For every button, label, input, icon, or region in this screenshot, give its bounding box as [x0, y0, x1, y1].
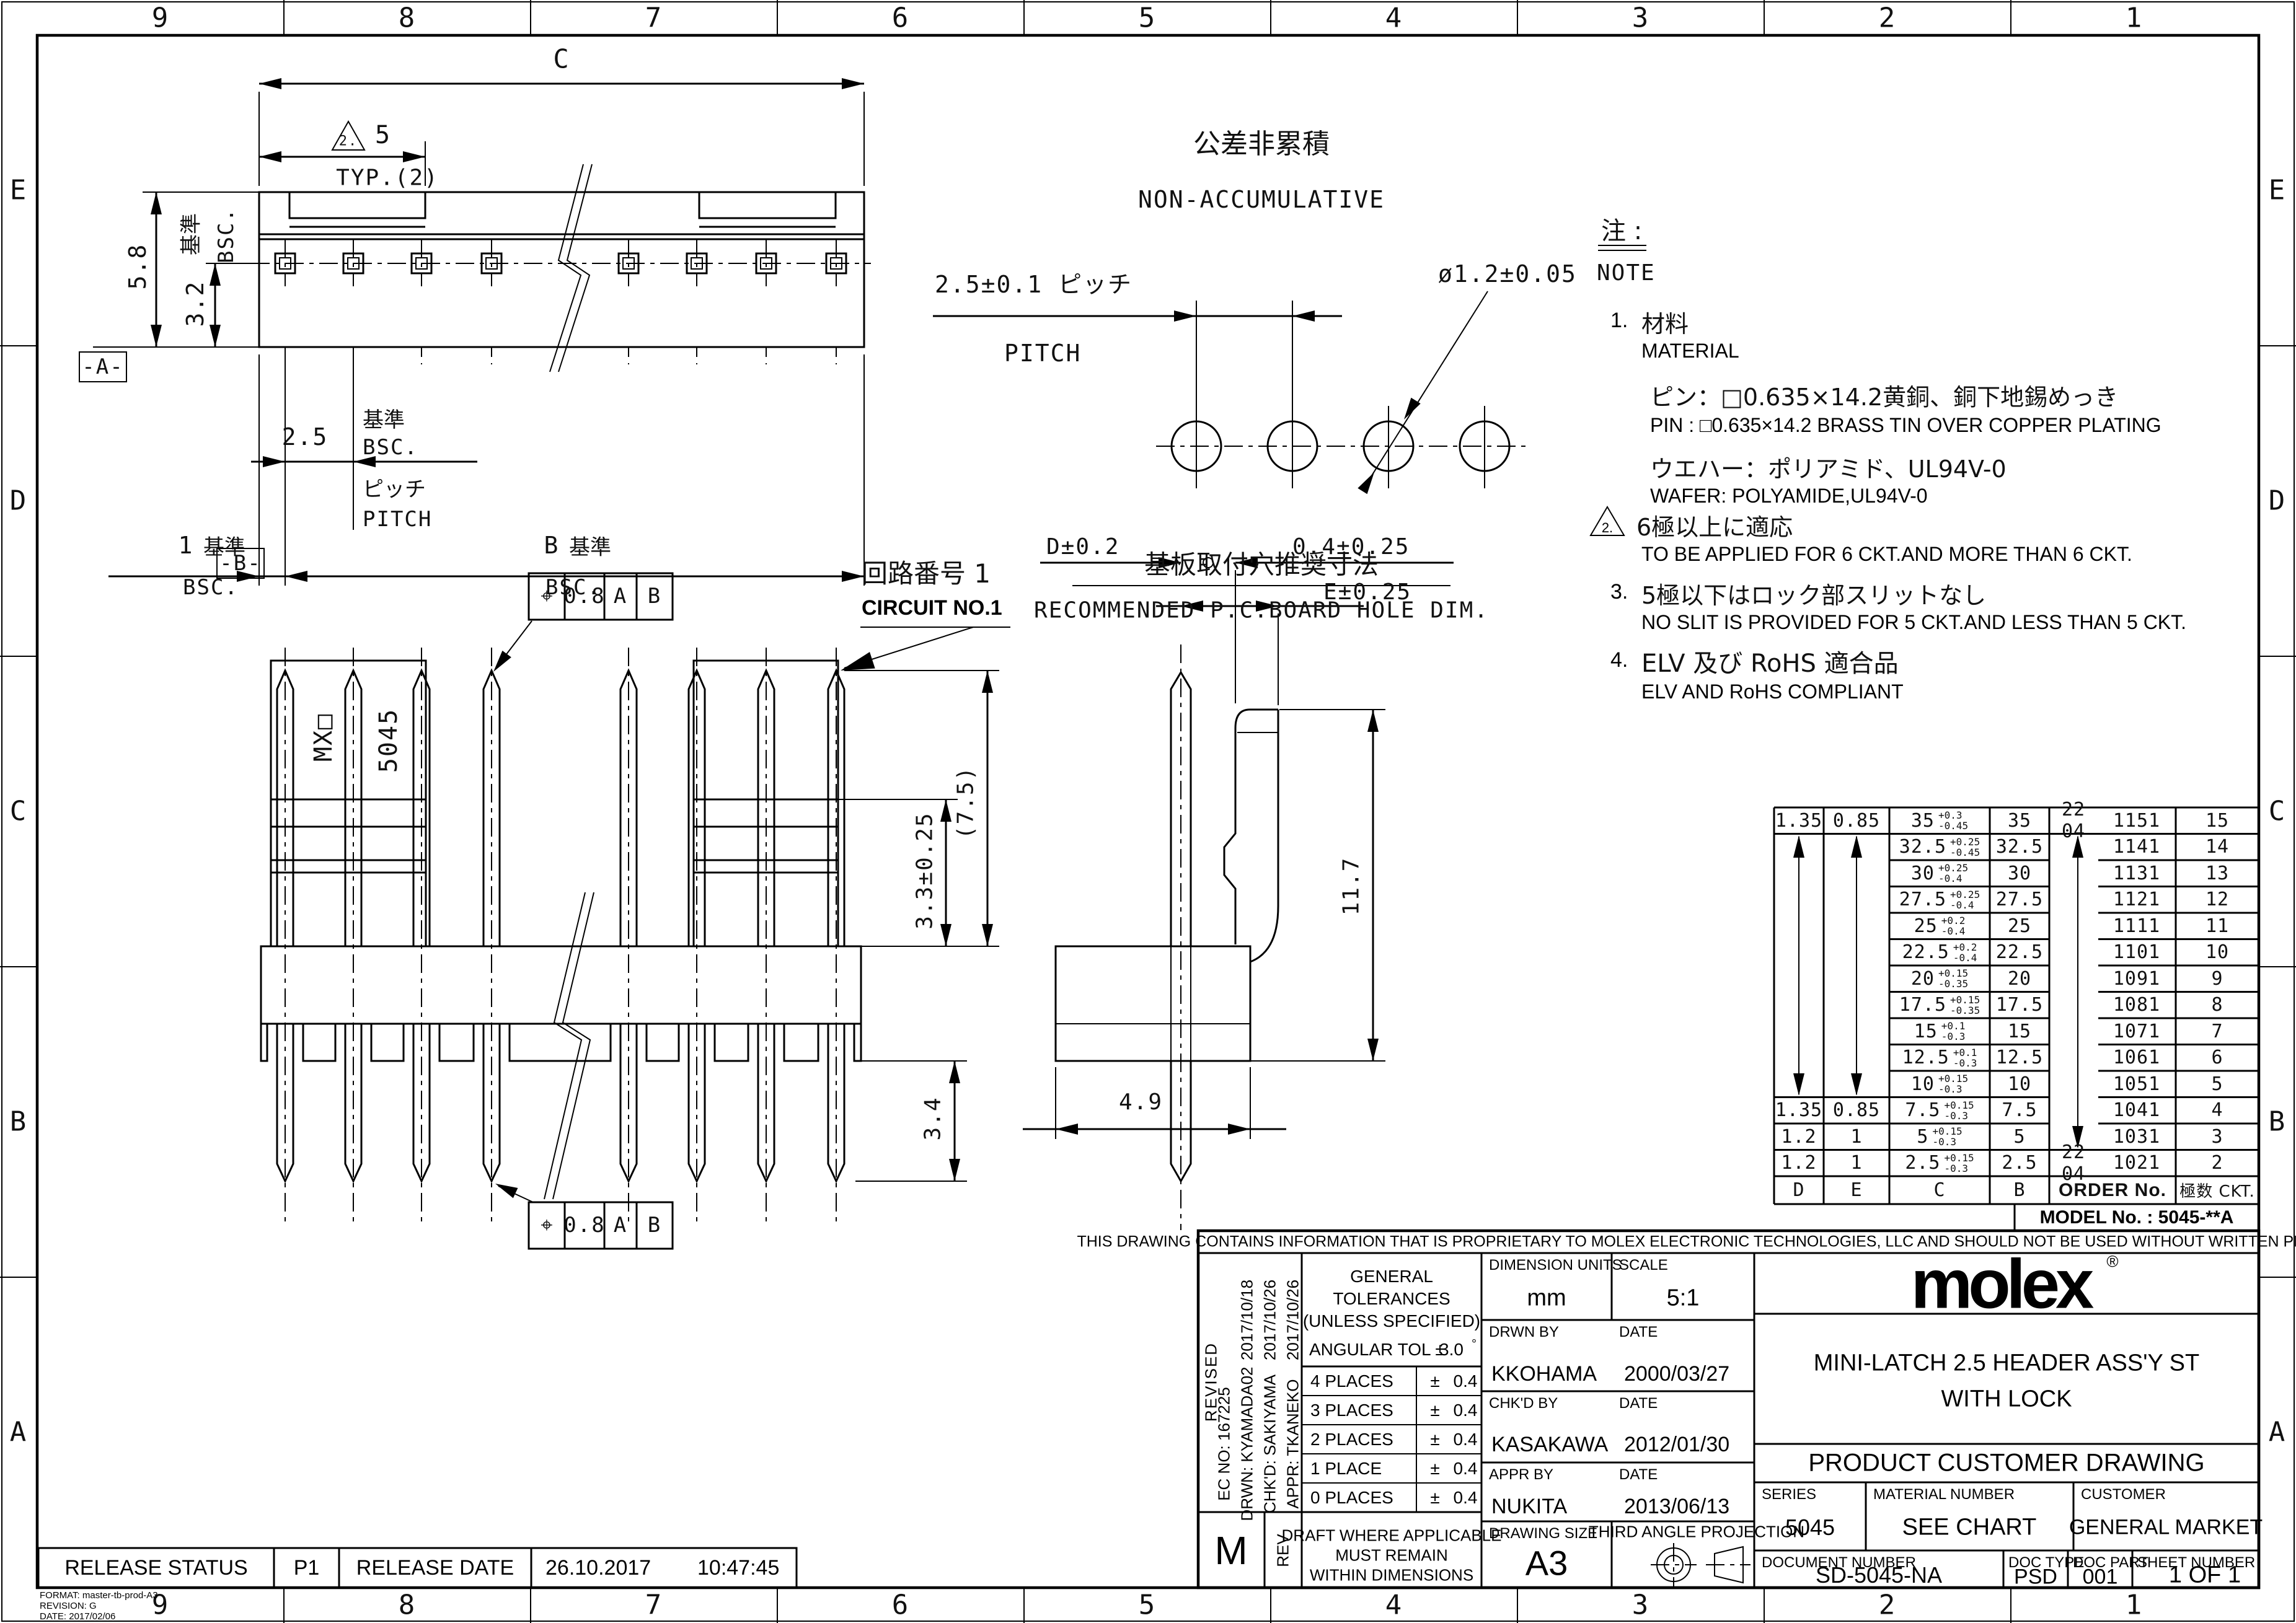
cell-d: 1.2 [1774, 1150, 1824, 1177]
bsc-label: BSC. [183, 575, 239, 600]
note-1a-en: PIN : □0.635×14.2 BRASS TIN OVER COPPER … [1650, 414, 2161, 437]
cell-c-value: 10 [1911, 1073, 1935, 1095]
cell-c-value: 17.5 [1899, 994, 1946, 1016]
docnum-value: SD-5045-NA [1816, 1562, 1942, 1588]
table-row: 30 +0.25 -0.4 30 1131 13 [1774, 860, 2259, 887]
cell-c-tolerance: +0.15 -0.3 [1932, 1126, 1962, 1147]
cell-order: 22 04 1151 [2049, 807, 2176, 834]
material-value: SEE CHART [1902, 1515, 2037, 1541]
doctype-value: PSD [2014, 1565, 2057, 1590]
rev-date: 2017/10/26 [1261, 1280, 1280, 1360]
table-row: 10 +0.15 -0.3 10 1051 5 [1774, 1071, 2259, 1097]
kijun-label: 基準 [363, 403, 405, 433]
tol-minus: -0.4 [1953, 952, 1977, 963]
tol-minus: -0.4 [1941, 926, 1966, 936]
cell-c-value: 15 [1914, 1021, 1938, 1042]
proprietary-note: THIS DRAWING CONTAINS INFORMATION THAT I… [1077, 1233, 2296, 1251]
cell-d [1774, 939, 1824, 966]
cell-e: 1 [1824, 1124, 1889, 1150]
cell-e [1824, 834, 1889, 861]
tolerance-row: 2 PLACES ± 0.4 [1302, 1425, 1481, 1454]
draft-note: MUST REMAIN [1335, 1546, 1448, 1565]
order-table-header: D E C B ORDER No. 極数 CKT. [1774, 1176, 2259, 1204]
cell-e: 0.85 [1824, 1097, 1889, 1124]
tol-title: (UNLESS SPECIFIED) [1303, 1311, 1480, 1331]
tol-plus: +0.25 [1938, 863, 1968, 873]
wall-mx: MX□ [309, 713, 338, 762]
tol-minus: -0.45 [1938, 820, 1968, 831]
cell-c: 35 +0.3 -0.45 [1889, 807, 1990, 834]
header-c: C [1889, 1176, 1990, 1204]
format-line2: REVISION: G [40, 1601, 158, 1611]
chkd-date-value: 2012/01/30 [1624, 1433, 1729, 1457]
rev-triangle-label: 2. [339, 134, 358, 149]
tol-plus: +0.15 [1938, 1073, 1968, 1084]
cell-e [1824, 1018, 1889, 1045]
molex-logo-r: ® [2106, 1252, 2118, 1272]
table-row: 32.5 +0.25 -0.45 32.5 1141 14 [1774, 834, 2259, 861]
dim-units-value: mm [1527, 1285, 1566, 1312]
cell-c-value: 25 [1914, 915, 1938, 937]
cell-order: 1071 [2049, 1018, 2176, 1045]
tol-minus: -0.3 [1938, 1084, 1968, 1094]
tol-pm: ± [1421, 1371, 1449, 1391]
cell-c-value: 7.5 [1905, 1099, 1940, 1121]
customer-label: CUSTOMER [2081, 1486, 2166, 1503]
cell-c: 25 +0.2 -0.4 [1889, 913, 1990, 939]
drwn-date-value: 2000/03/27 [1624, 1362, 1729, 1386]
cell-c-tolerance: +0.15 -0.35 [1938, 968, 1968, 989]
table-row: 1.35 0.85 7.5 +0.15 -0.3 7.5 1041 4 [1774, 1097, 2259, 1124]
cell-c: 22.5 +0.2 -0.4 [1889, 939, 1990, 966]
tol-value: 0.4 [1449, 1459, 1481, 1479]
cell-e: 0.85 [1824, 807, 1889, 834]
cell-c-tolerance: +0.25 -0.45 [1950, 837, 1980, 858]
dim-3-3: 3.3±0.25 [912, 812, 938, 929]
tol-minus: -0.3 [1945, 1111, 1974, 1121]
projection-label: THIRD ANGLE PROJECTION [1589, 1523, 1804, 1542]
cell-d [1774, 1018, 1824, 1045]
order-number: 1081 [2098, 994, 2176, 1016]
tol-places: 0 PLACES [1302, 1488, 1421, 1508]
pitch-jp: ピッチ [363, 472, 426, 503]
date-label: DATE [1619, 1466, 1658, 1484]
cell-ckt: 11 [2176, 913, 2259, 939]
note-header-en: NOTE [1597, 260, 1656, 286]
chkd-sig: CHK'D: SAKIYAMA [1261, 1374, 1280, 1513]
cell-order: 1141 [2049, 834, 2176, 861]
grid-col-label: 7 [645, 1590, 663, 1621]
cell-ckt: 10 [2176, 939, 2259, 966]
tol-minus: -0.3 [1932, 1137, 1962, 1147]
tol-value: 0.4 [1449, 1488, 1481, 1508]
order-number: 1121 [2098, 889, 2176, 910]
header-d: D [1774, 1176, 1824, 1204]
kijun-label: 基準 [569, 530, 611, 561]
note-1-jp: 材料 [1641, 305, 1689, 339]
dim-e: E±0.25 [1323, 579, 1411, 605]
cell-c: 7.5 +0.15 -0.3 [1889, 1097, 1990, 1124]
tol-value: 0.4 [1449, 1371, 1481, 1391]
cell-ckt: 9 [2176, 965, 2259, 992]
order-number: 1101 [2098, 941, 2176, 963]
grid-col-label: 9 [152, 2, 170, 34]
cell-c: 17.5 +0.15 -0.35 [1889, 992, 1990, 1019]
molex-logo: molex [1911, 1244, 2090, 1324]
hole-caption-en: RECOMMENDED P.C.BOARD HOLE DIM. [1034, 598, 1489, 623]
cell-order: 1051 [2049, 1071, 2176, 1097]
tol-places: 3 PLACES [1302, 1401, 1421, 1420]
cell-b: 22.5 [1990, 939, 2049, 966]
rev-letter: M [1214, 1528, 1247, 1573]
cell-b: 7.5 [1990, 1097, 2049, 1124]
order-number: 1091 [2098, 968, 2176, 990]
order-number: 1141 [2098, 836, 2176, 858]
dim-c: C [553, 44, 570, 74]
scale-value: 5:1 [1667, 1285, 1700, 1312]
drwn-by-value: KKOHAMA [1491, 1362, 1597, 1386]
grid-col-label: 6 [892, 2, 910, 34]
cell-e [1824, 1045, 1889, 1071]
cell-c-value: 12.5 [1902, 1047, 1949, 1068]
order-number: 1061 [2098, 1047, 2176, 1068]
note-2-tri: 2. [1602, 520, 1613, 536]
note-1-en: MATERIAL [1641, 340, 1739, 363]
cell-d [1774, 1071, 1824, 1097]
cell-d [1774, 887, 1824, 913]
grid-col-label: 1 [2126, 2, 2144, 34]
tol-plus: +0.2 [1941, 915, 1966, 926]
date-label: DATE [1619, 1324, 1658, 1341]
note-2-en: TO BE APPLIED FOR 6 CKT.AND MORE THAN 6 … [1641, 543, 2132, 566]
dim-0-4: 0.4±0.25 [1292, 534, 1410, 560]
scale-label: SCALE [1619, 1257, 1668, 1274]
date-label: DATE [1619, 1395, 1658, 1412]
cell-c-tolerance: +0.15 -0.3 [1945, 1153, 1974, 1174]
note-2-jp: 6極以上に適応 [1636, 508, 1793, 542]
table-row: 20 +0.15 -0.35 20 1091 9 [1774, 965, 2259, 992]
bsc-label: BSC. [363, 435, 418, 460]
cell-ckt: 2 [2176, 1150, 2259, 1177]
cell-c: 5 +0.15 -0.3 [1889, 1124, 1990, 1150]
cell-ckt: 5 [2176, 1071, 2259, 1097]
cell-ckt: 7 [2176, 1018, 2259, 1045]
cell-d [1774, 965, 1824, 992]
grid-col-label: 4 [1385, 1590, 1403, 1621]
fcf-datum-a: A [614, 1213, 627, 1238]
cell-ckt: 12 [2176, 887, 2259, 913]
drwn-by-label: DRWN BY [1489, 1324, 1559, 1341]
cell-b: 5 [1990, 1124, 2049, 1150]
rev-date: 2017/10/26 [1284, 1280, 1303, 1360]
cell-e [1824, 939, 1889, 966]
table-row: 15 +0.1 -0.3 15 1071 7 [1774, 1018, 2259, 1045]
drawing-sheet: 9 8 7 6 5 4 3 2 1 9 8 7 6 5 4 3 2 1 E D … [0, 0, 2296, 1623]
cell-c: 15 +0.1 -0.3 [1889, 1018, 1990, 1045]
tol-plus: +0.2 [1953, 942, 1977, 952]
fcf-tol: 0.8 [563, 1213, 605, 1238]
dim-7-5: (7.5) [953, 766, 979, 839]
format-line3: DATE: 2017/02/06 [40, 1611, 158, 1622]
cell-c-tolerance: +0.25 -0.4 [1950, 889, 1980, 910]
cell-order: 1101 [2049, 939, 2176, 966]
datum-b: -B- [219, 551, 261, 576]
order-number: 1071 [2098, 1021, 2176, 1042]
circuit-no-jp: 回路番号 1 [862, 553, 991, 591]
cell-c-value: 22.5 [1902, 941, 1949, 963]
order-number: 1021 [2098, 1152, 2176, 1174]
dim-3-2: 3.2 [182, 281, 209, 327]
series-value: 5045 [1785, 1515, 1835, 1541]
cell-b: 17.5 [1990, 992, 2049, 1019]
fcf-datum-b: B [648, 584, 661, 609]
tolerance-row: 1 PLACE ± 0.4 [1302, 1454, 1481, 1483]
customer-value: GENERAL MARKET [2069, 1516, 2263, 1540]
table-row: 12.5 +0.1 -0.3 12.5 1061 6 [1774, 1045, 2259, 1071]
drawing-size-value: A3 [1526, 1543, 1568, 1583]
cell-e: 1 [1824, 1150, 1889, 1177]
tol-plus: +0.15 [1945, 1100, 1974, 1111]
cell-b: 25 [1990, 913, 2049, 939]
cell-b: 2.5 [1990, 1150, 2049, 1177]
chkd-by-value: KASAKAWA [1491, 1433, 1608, 1457]
dim-5-8: 5.8 [124, 244, 151, 290]
cell-c: 27.5 +0.25 -0.4 [1889, 887, 1990, 913]
cell-c-value: 20 [1911, 968, 1935, 990]
cell-d: 1.35 [1774, 1097, 1824, 1124]
cell-c-value: 5 [1917, 1126, 1928, 1148]
chkd-by-label: CHK'D BY [1489, 1395, 1558, 1412]
draft-note: DRAFT WHERE APPLICABLE [1282, 1526, 1502, 1546]
order-number: 1111 [2098, 915, 2176, 937]
cell-c-tolerance: +0.15 -0.35 [1950, 995, 1980, 1016]
release-status-value: P1 [274, 1548, 339, 1588]
hole-dia-dim: ø1.2±0.05 [1438, 260, 1577, 288]
rev-date: 2017/10/18 [1238, 1280, 1257, 1360]
cell-order: 1061 [2049, 1045, 2176, 1071]
tolerance-row: 4 PLACES ± 0.4 [1302, 1366, 1481, 1396]
cell-ckt: 4 [2176, 1097, 2259, 1124]
cell-c: 10 +0.15 -0.3 [1889, 1071, 1990, 1097]
dim-units-label: DIMENSION UNITS [1489, 1257, 1622, 1274]
cell-order: 1041 [2049, 1097, 2176, 1124]
grid-row-label: E [2269, 175, 2287, 206]
grid-col-label: 2 [1879, 2, 1897, 34]
side-view-linework [1023, 557, 1454, 1230]
header-e: E [1824, 1176, 1889, 1204]
dim-typ2: TYP.(2) [336, 165, 439, 191]
header-b: B [1990, 1176, 2049, 1204]
cell-ckt: 14 [2176, 834, 2259, 861]
position-symbol-icon: ⌖ [541, 584, 552, 609]
tol-minus: -0.4 [1950, 900, 1980, 910]
tol-plus: +0.3 [1938, 810, 1968, 820]
fcf-datum-b: B [648, 1213, 661, 1238]
table-row: 22.5 +0.2 -0.4 22.5 1101 10 [1774, 939, 2259, 966]
cell-c-tolerance: +0.3 -0.45 [1938, 810, 1968, 831]
grid-col-label: 3 [1632, 2, 1650, 34]
cell-ckt: 3 [2176, 1124, 2259, 1150]
cell-d [1774, 834, 1824, 861]
drwn-sig: DRWN: KYAMADA02 [1238, 1367, 1257, 1521]
hole-title-jp: 公差非累積 [1193, 121, 1330, 161]
tol-value: 0.4 [1449, 1430, 1481, 1449]
tol-minus: -0.3 [1945, 1163, 1974, 1174]
angular-tol-label: ANGULAR TOL ± [1309, 1340, 1445, 1360]
cell-e [1824, 913, 1889, 939]
tol-minus: -0.45 [1950, 847, 1980, 858]
order-table: 1.35 0.85 35 +0.3 -0.45 35 22 04 1151 15… [1774, 807, 2259, 1176]
angular-tol-value: 3.0 [1439, 1340, 1464, 1360]
table-row: 1.35 0.85 35 +0.3 -0.45 35 22 04 1151 15 [1774, 807, 2259, 834]
cell-c-value: 27.5 [1899, 889, 1946, 910]
grid-col-label: 6 [892, 1590, 910, 1621]
cell-e [1824, 1071, 1889, 1097]
release-date-value: 26.10.2017 [545, 1548, 651, 1588]
grid-row-label: B [10, 1106, 28, 1138]
cell-ckt: 13 [2176, 860, 2259, 887]
drawing-title-line2: WITH LOCK [1941, 1386, 2072, 1413]
ec-no: EC NO: 167225 [1215, 1387, 1234, 1501]
cell-e [1824, 992, 1889, 1019]
angular-tol-deg: ° [1472, 1337, 1477, 1352]
dim-11-7: 11.7 [1339, 857, 1364, 916]
hole-title-en: NON-ACCUMULATIVE [1138, 186, 1385, 213]
draft-note: WITHIN DIMENSIONS [1310, 1566, 1473, 1585]
wall-series: 5045 [374, 708, 403, 773]
cell-order: 1081 [2049, 992, 2176, 1019]
tol-title: GENERAL [1350, 1267, 1433, 1287]
cell-d [1774, 1045, 1824, 1071]
grid-col-label: 8 [399, 1590, 417, 1621]
grid-col-label: 3 [1632, 1590, 1650, 1621]
cell-b: 12.5 [1990, 1045, 2049, 1071]
cell-c-value: 30 [1911, 863, 1935, 884]
appr-by-value: NUKITA [1491, 1495, 1567, 1519]
cell-b: 30 [1990, 860, 2049, 887]
order-number: 1151 [2098, 810, 2176, 832]
note-1b-en: WAFER: POLYAMIDE,UL94V-0 [1650, 485, 1928, 508]
grid-row-label: C [10, 796, 28, 827]
order-number: 1031 [2098, 1126, 2176, 1148]
cell-c-value: 35 [1911, 810, 1935, 832]
format-note: FORMAT: master-tb-prod-A3 REVISION: G DA… [40, 1590, 158, 1622]
grid-row-label: E [10, 175, 28, 206]
third-angle-projection-icon [1651, 1543, 1751, 1586]
tol-plus: +0.15 [1938, 968, 1968, 979]
note-1a-jp: ピン：□0.635×14.2黄銅、銅下地錫めっき [1650, 378, 2118, 412]
cell-c-tolerance: +0.1 -0.3 [1941, 1021, 1966, 1042]
drawing-size-label: DRAWING SIZE [1489, 1525, 1597, 1542]
order-number: 1041 [2098, 1099, 2176, 1121]
tol-pm: ± [1421, 1488, 1449, 1508]
cell-order: 1111 [2049, 913, 2176, 939]
table-row: 17.5 +0.15 -0.35 17.5 1081 8 [1774, 992, 2259, 1019]
pitch-en: PITCH [363, 507, 432, 532]
dim-1: 1 [179, 532, 194, 559]
cell-ckt: 8 [2176, 992, 2259, 1019]
tol-title: TOLERANCES [1333, 1289, 1450, 1309]
doc-title: PRODUCT CUSTOMER DRAWING [1808, 1449, 2204, 1477]
cell-c-tolerance: +0.1 -0.3 [1953, 1047, 1977, 1068]
dim-b: B [544, 532, 560, 559]
grid-col-label: 1 [2126, 1590, 2144, 1621]
material-label: MATERIAL NUMBER [1873, 1486, 2015, 1503]
cell-c-value: 2.5 [1905, 1152, 1940, 1174]
fcf-tol: 0.8 [563, 584, 605, 609]
cell-c-tolerance: +0.25 -0.4 [1938, 863, 1968, 884]
grid-col-label: 4 [1385, 2, 1403, 34]
top-view-linework [79, 78, 871, 586]
appr-sig: APPR: TKANEKO [1284, 1379, 1303, 1508]
tol-value: 0.4 [1449, 1401, 1481, 1420]
circuit-no-en: CIRCUIT NO.1 [862, 596, 1002, 620]
bsc-label: BSC. [214, 208, 239, 263]
dim-4-9: 4.9 [1119, 1089, 1163, 1115]
cell-c: 20 +0.15 -0.35 [1889, 965, 1990, 992]
grid-row-label: A [10, 1417, 28, 1448]
order-number: 1051 [2098, 1073, 2176, 1095]
note-3-num: 3. [1610, 580, 1628, 604]
drawing-title-line1: MINI-LATCH 2.5 HEADER ASS'Y ST [1814, 1350, 2199, 1377]
dim-5: 5 [375, 121, 391, 149]
cell-d: 1.2 [1774, 1124, 1824, 1150]
table-row: 1.2 1 5 +0.15 -0.3 5 1031 3 [1774, 1124, 2259, 1150]
tol-minus: -0.35 [1938, 979, 1968, 989]
release-time-value: 10:47:45 [697, 1548, 779, 1588]
tol-pm: ± [1421, 1459, 1449, 1479]
format-line1: FORMAT: master-tb-prod-A3 [40, 1590, 158, 1601]
note-3-jp: 5極以下はロック部スリットなし [1641, 576, 1986, 610]
tol-plus: +0.1 [1941, 1021, 1966, 1031]
notes-linework [1591, 245, 1646, 535]
fcf-datum-a: A [614, 584, 627, 609]
tol-minus: -0.3 [1941, 1031, 1966, 1042]
cell-c: 30 +0.25 -0.4 [1889, 860, 1990, 887]
tol-minus: -0.35 [1950, 1005, 1980, 1016]
cell-b: 15 [1990, 1018, 2049, 1045]
tol-pm: ± [1421, 1430, 1449, 1449]
cell-c-tolerance: +0.15 -0.3 [1938, 1073, 1968, 1094]
release-date-label: RELEASE DATE [339, 1548, 531, 1588]
grid-col-label: 2 [1879, 1590, 1897, 1621]
cell-e [1824, 965, 1889, 992]
note-1b-jp: ウエハー：ポリアミド、UL94V-0 [1650, 450, 2007, 484]
tol-plus: +0.15 [1932, 1126, 1962, 1137]
cell-c-tolerance: +0.2 -0.4 [1941, 915, 1966, 936]
cell-d: 1.35 [1774, 807, 1824, 834]
cell-c: 32.5 +0.25 -0.45 [1889, 834, 1990, 861]
model-no: MODEL No. : 5045-**A [2040, 1207, 2234, 1228]
series-label: SERIES [1762, 1486, 1816, 1503]
cell-b: 27.5 [1990, 887, 2049, 913]
grid-col-label: 5 [1139, 2, 1157, 34]
dim-2-5: 2.5 [282, 423, 329, 451]
tol-places: 1 PLACE [1302, 1459, 1421, 1479]
cell-ckt: 6 [2176, 1045, 2259, 1071]
front-view-linework [217, 548, 1010, 1249]
cell-b: 10 [1990, 1071, 2049, 1097]
cell-order: 1121 [2049, 887, 2176, 913]
note-4-en: ELV AND RoHS COMPLIANT [1641, 680, 1904, 703]
cell-b: 35 [1990, 807, 2049, 834]
cell-d [1774, 992, 1824, 1019]
tol-plus: +0.15 [1945, 1153, 1974, 1163]
grid-row-label: C [2269, 796, 2287, 827]
tol-minus: -0.3 [1953, 1058, 1977, 1068]
note-4-jp: ELV 及び RoHS 適合品 [1641, 643, 1899, 679]
dim-d: D±0.2 [1046, 534, 1119, 560]
